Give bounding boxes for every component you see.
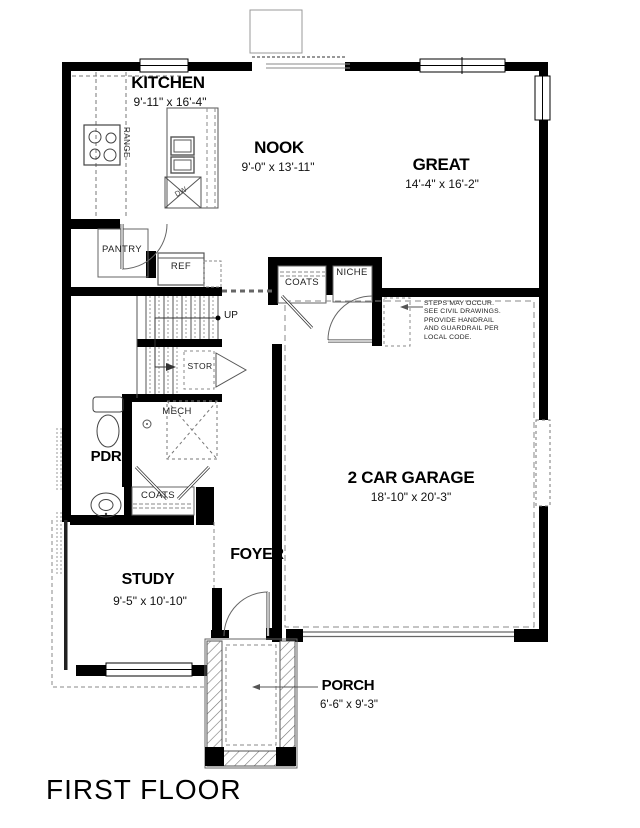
pantry-label: PANTRY bbox=[102, 245, 142, 255]
steps-note-line: PROVIDE HANDRAIL bbox=[424, 317, 520, 325]
porch-structure bbox=[205, 639, 297, 768]
foyer-label: FOYER bbox=[230, 547, 284, 564]
stor-label: STOR bbox=[187, 362, 212, 371]
porch-dims: 6'-6" x 9'-3" bbox=[320, 699, 378, 711]
mech-label: MECH bbox=[162, 407, 192, 417]
study-dims: 9'-5" x 10'-10" bbox=[113, 595, 187, 608]
kitchen-dims: 9'-11" x 16'-4" bbox=[134, 96, 207, 109]
steps-note-line: AND GUARDRAIL PER bbox=[424, 325, 520, 333]
study-label: STUDY bbox=[122, 572, 175, 589]
steps-note-line: STEPS MAY OCCUR. bbox=[424, 300, 520, 308]
drawing-title: FIRST FLOOR bbox=[46, 774, 242, 806]
note-leader bbox=[400, 304, 423, 310]
garage-label: 2 CAR GARAGE bbox=[348, 469, 475, 487]
sink bbox=[91, 493, 121, 517]
nook-label: NOOK bbox=[254, 139, 304, 157]
up-label: UP bbox=[224, 311, 238, 322]
kitchen-label: KITCHEN bbox=[131, 74, 204, 92]
niche-label: NICHE bbox=[336, 268, 368, 278]
steps-note-line: LOCAL CODE. bbox=[424, 334, 520, 342]
garage-door bbox=[303, 632, 514, 637]
steps-note: STEPS MAY OCCUR. SEE CIVIL DRAWINGS. PRO… bbox=[424, 300, 520, 342]
ref-label: REF bbox=[171, 262, 191, 272]
coats-hall-label: COATS bbox=[285, 278, 319, 288]
coats-foyer-label: COATS bbox=[141, 491, 175, 501]
pdr-label: PDR bbox=[91, 449, 122, 465]
steps-note-line: SEE CIVIL DRAWINGS. bbox=[424, 308, 520, 316]
nook-dims: 9'-0" x 13'-11" bbox=[242, 161, 315, 174]
garage-dims: 18'-10" x 20'-3" bbox=[371, 491, 451, 504]
top-bumpout bbox=[250, 10, 350, 68]
range bbox=[84, 125, 120, 165]
great-dims: 14'-4" x 16'-2" bbox=[405, 178, 479, 191]
toilet bbox=[93, 397, 123, 447]
range-label: RANGE bbox=[122, 127, 130, 158]
porch-label: PORCH bbox=[322, 678, 375, 694]
great-label: GREAT bbox=[413, 156, 470, 174]
floor-plan: KITCHEN 9'-11" x 16'-4" NOOK 9'-0" x 13'… bbox=[0, 0, 640, 828]
